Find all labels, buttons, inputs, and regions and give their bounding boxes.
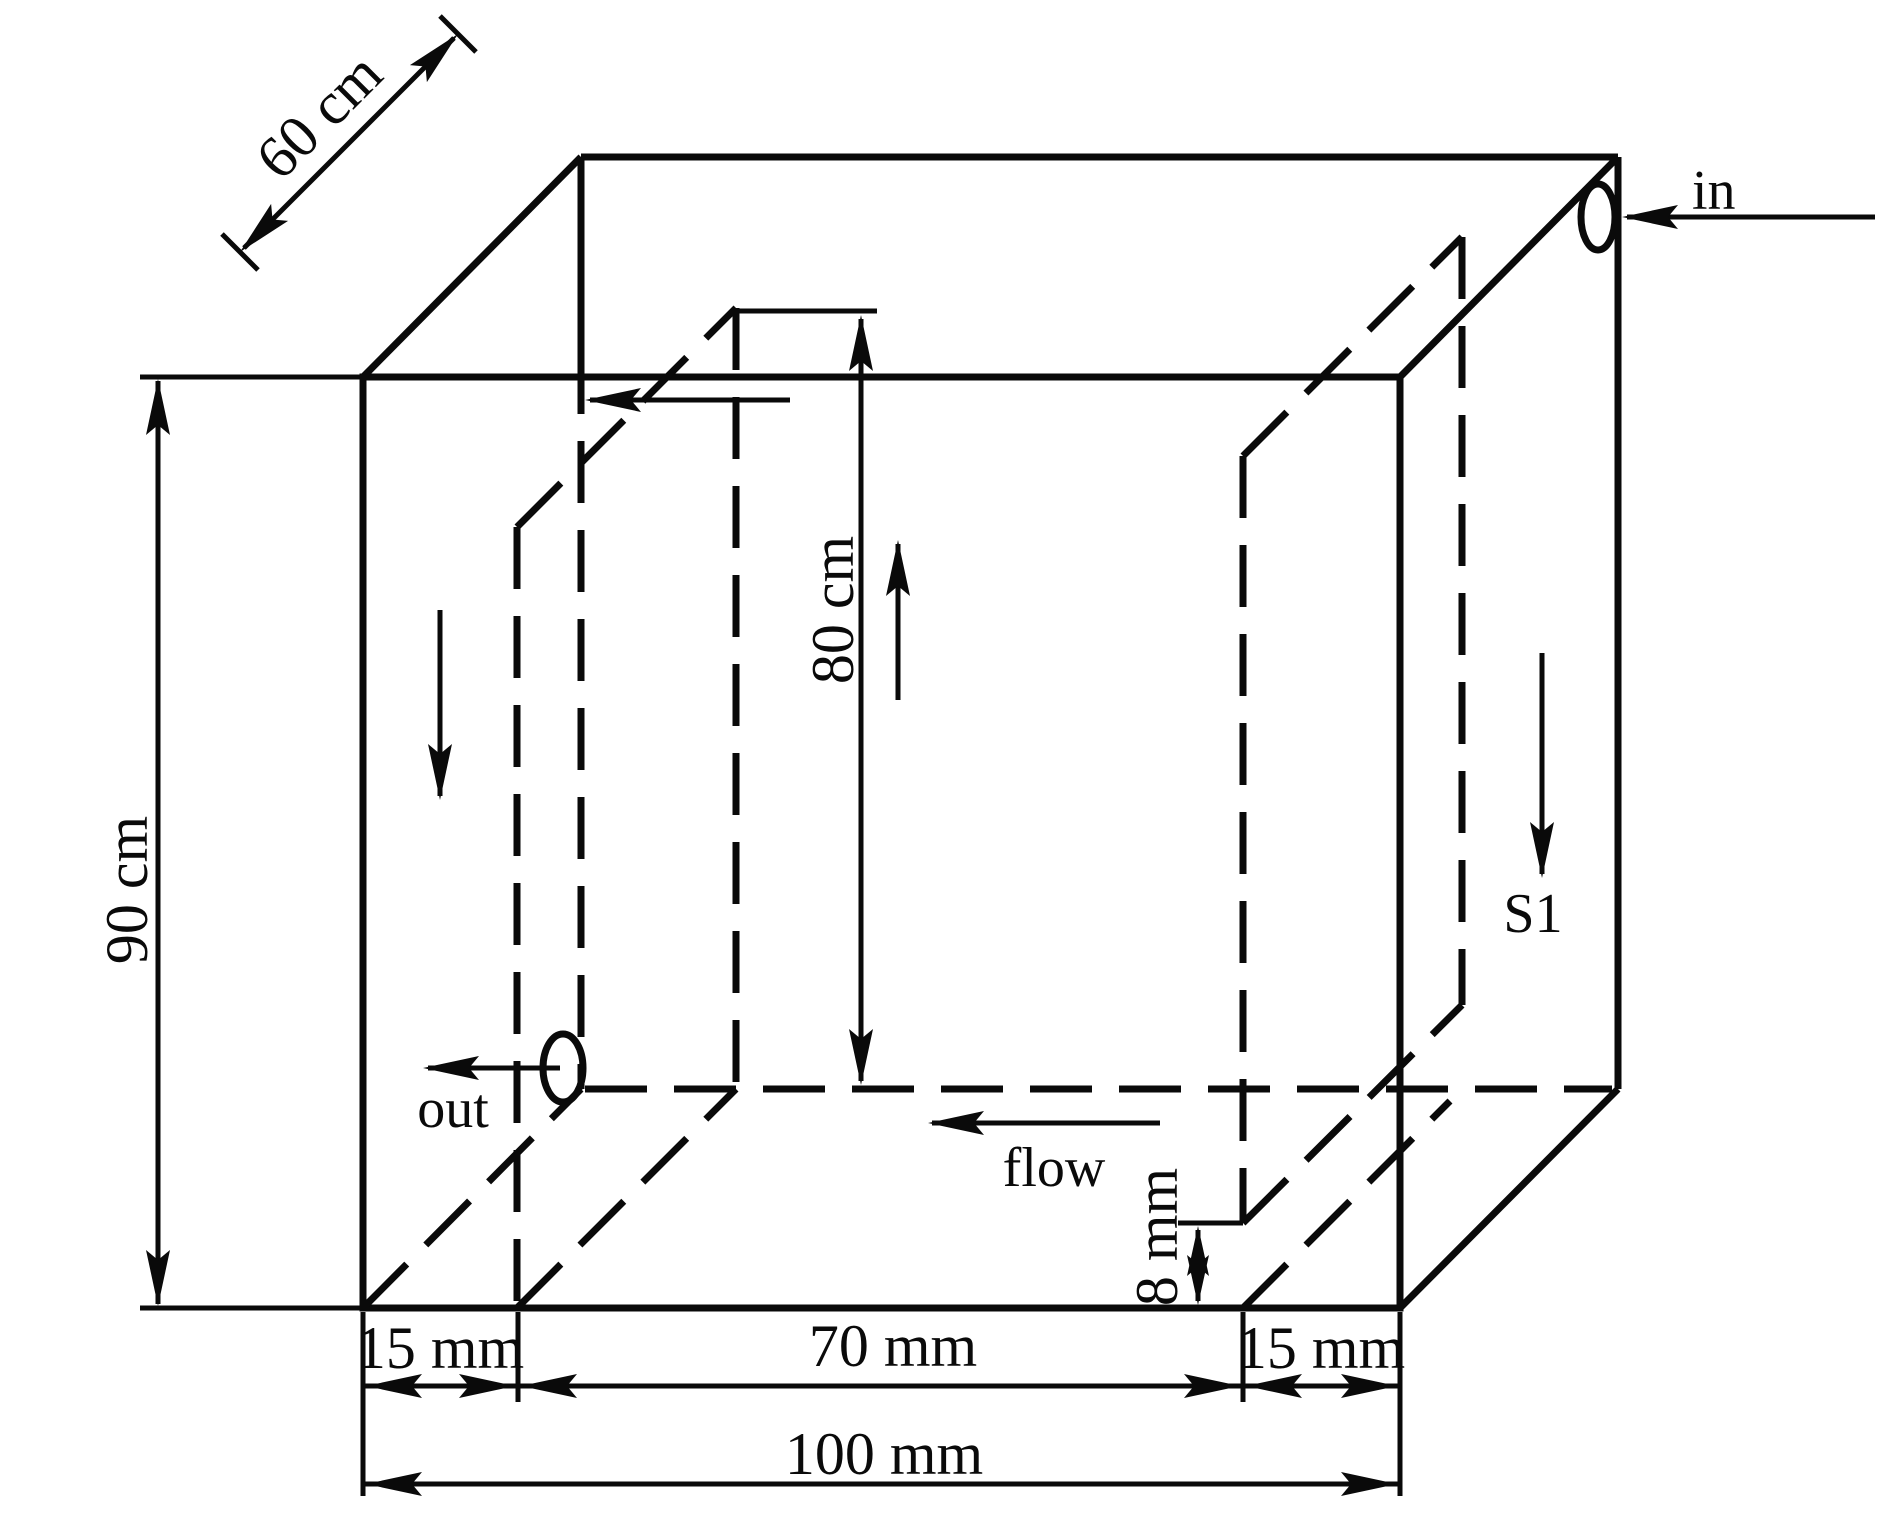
top-left-depth-edge bbox=[363, 157, 581, 377]
dim-left-offset-label: 15 mm bbox=[356, 1315, 524, 1381]
tank-diagram: out in flow S1 bbox=[0, 0, 1890, 1535]
right-baffle bbox=[1243, 237, 1462, 1308]
inlet-port: in bbox=[1581, 160, 1875, 250]
dim-baffle-spacing-label: 70 mm bbox=[809, 1313, 977, 1379]
dim-right-offset-label: 15 mm bbox=[1237, 1315, 1405, 1381]
outlet-label: out bbox=[417, 1078, 489, 1140]
left-baffle bbox=[517, 308, 736, 1308]
dim-depth-label: 60 cm bbox=[243, 40, 395, 192]
dim-total-width: 100 mm bbox=[363, 1421, 1400, 1496]
dim-bottom-gap-label: 8 mm bbox=[1124, 1168, 1190, 1306]
tank-diagram-page: out in flow S1 bbox=[0, 0, 1890, 1535]
left-baffle-bottom-edge bbox=[517, 1089, 736, 1308]
bottom-right-depth-edge bbox=[1400, 1089, 1618, 1308]
dim-height: 90 cm bbox=[94, 377, 363, 1308]
section-s1-label: S1 bbox=[1503, 883, 1562, 945]
tank-outline bbox=[363, 157, 1618, 1308]
inlet-label: in bbox=[1692, 160, 1736, 222]
right-baffle-floor-line bbox=[1243, 1101, 1450, 1308]
dim-height-label: 90 cm bbox=[94, 816, 160, 964]
right-baffle-bottom-edge bbox=[1243, 1005, 1462, 1223]
dim-baffle-height-label: 80 cm bbox=[800, 536, 866, 684]
flow-label: flow bbox=[1003, 1137, 1106, 1199]
dim-depth: 60 cm bbox=[222, 16, 476, 270]
outlet-port: out bbox=[417, 1034, 583, 1140]
dim-total-width-label: 100 mm bbox=[785, 1421, 983, 1487]
left-baffle-top-edge bbox=[517, 308, 736, 527]
dim-bottom-gap: 8 mm bbox=[1124, 1168, 1243, 1306]
inlet-port-ellipse bbox=[1581, 184, 1615, 250]
dim-baffle-height: 80 cm bbox=[736, 311, 877, 1085]
